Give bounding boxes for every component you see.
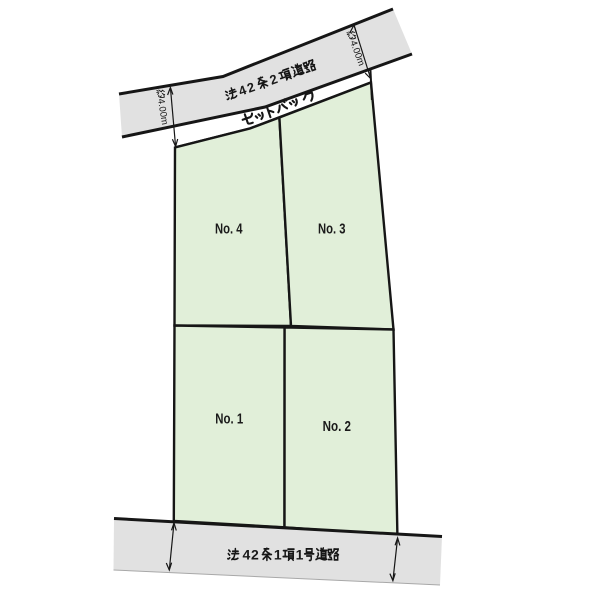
svg-text:1: 1 [274, 547, 282, 563]
svg-text:1: 1 [296, 547, 304, 563]
svg-text:2: 2 [251, 547, 259, 563]
svg-text:No. 3: No. 3 [318, 221, 346, 238]
svg-text:No. 2: No. 2 [323, 418, 351, 435]
svg-text:No. 1: No. 1 [215, 411, 243, 428]
svg-text:4: 4 [243, 547, 251, 563]
svg-text:No. 4: No. 4 [215, 221, 243, 238]
